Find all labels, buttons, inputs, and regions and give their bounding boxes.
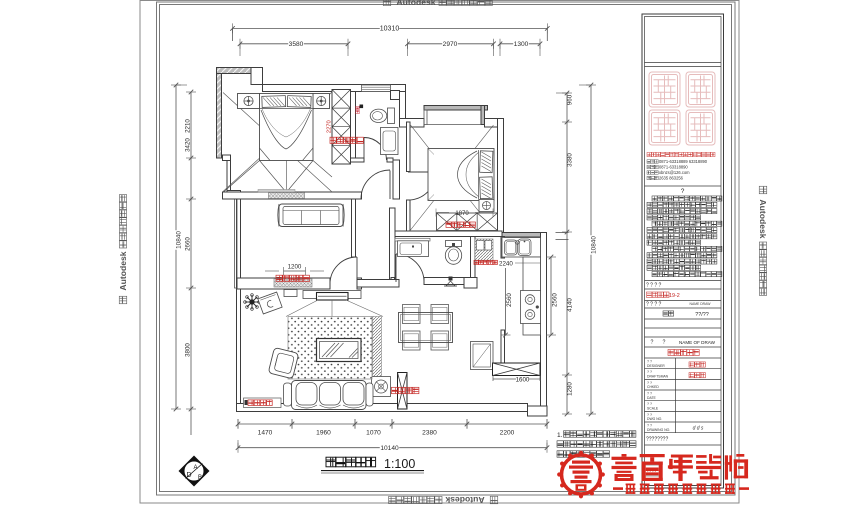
svg-text:3380: 3380 [567, 153, 574, 167]
svg-text:1470: 1470 [258, 430, 273, 437]
svg-text:? ? ? ?: ? ? ? ? [646, 283, 662, 289]
svg-text:960: 960 [567, 94, 574, 105]
svg-text:??/??: ??/?? [695, 312, 709, 318]
svg-text:????????: ???????? [646, 437, 668, 443]
svg-text:DRAWING NO.: DRAWING NO. [647, 428, 670, 432]
svg-text:d d s: d d s [693, 426, 704, 432]
svg-text:0871-63318890: 0871-63318890 [659, 165, 688, 170]
svg-text:CHKED: CHKED [647, 385, 659, 389]
svg-text:B: B [198, 475, 202, 481]
svg-text:DESIGNER: DESIGNER [647, 364, 665, 368]
svg-text:2560: 2560 [506, 293, 513, 307]
svg-text:1070: 1070 [366, 430, 381, 437]
svg-text:Autodesk: Autodesk [396, 0, 435, 7]
svg-text:10140: 10140 [380, 445, 399, 452]
svg-text:xbnzs@126.com: xbnzs@126.com [659, 170, 690, 175]
svg-text:?: ? [681, 188, 685, 195]
svg-text:1870: 1870 [455, 211, 469, 217]
svg-text:19-2: 19-2 [669, 293, 680, 299]
svg-text:Autodesk: Autodesk [758, 199, 768, 238]
svg-text:2635 863256: 2635 863256 [659, 176, 684, 181]
svg-text:10310: 10310 [380, 26, 400, 33]
svg-text:DWG NO.: DWG NO. [647, 417, 662, 421]
svg-text:DRAFTSMAN: DRAFTSMAN [647, 375, 669, 379]
svg-text:NAME OF DRAW: NAME OF DRAW [679, 340, 716, 345]
svg-text:0871-63318889 63318890: 0871-63318889 63318890 [659, 159, 708, 164]
svg-text:2660: 2660 [185, 237, 192, 251]
svg-text:10840: 10840 [175, 231, 182, 249]
svg-text:Autodesk: Autodesk [445, 495, 484, 505]
svg-text:2210: 2210 [185, 119, 192, 133]
svg-text:3800: 3800 [185, 343, 192, 357]
svg-text:SCALE: SCALE [647, 407, 659, 411]
svg-text:DATE: DATE [647, 396, 657, 400]
svg-text:10840: 10840 [590, 236, 597, 254]
svg-text:?: ? [651, 340, 654, 346]
svg-text:1200: 1200 [288, 263, 302, 270]
svg-text:1960: 1960 [316, 430, 331, 437]
svg-text:1280: 1280 [567, 382, 574, 396]
svg-text:2200: 2200 [500, 430, 515, 437]
svg-text:1300: 1300 [514, 41, 529, 48]
svg-text:3420: 3420 [185, 138, 192, 152]
svg-text:2380: 2380 [422, 430, 437, 437]
svg-text:A: A [193, 465, 197, 471]
svg-text:Autodesk: Autodesk [118, 251, 128, 290]
svg-text:2970: 2970 [443, 41, 458, 48]
svg-text:2240: 2240 [499, 261, 513, 268]
svg-text:? ? ? ?: ? ? ? ? [646, 302, 662, 308]
svg-text:NAME DRAW: NAME DRAW [690, 302, 712, 306]
svg-text:2270: 2270 [327, 120, 333, 133]
svg-text:?: ? [663, 340, 666, 346]
svg-text:4140: 4140 [567, 298, 574, 312]
svg-text:3580: 3580 [289, 41, 304, 48]
svg-text:2560: 2560 [552, 293, 559, 307]
svg-text:D: D [186, 472, 191, 479]
svg-text:1600: 1600 [516, 377, 530, 384]
svg-text:1:100: 1:100 [384, 457, 415, 471]
svg-text:1.: 1. [557, 432, 563, 439]
